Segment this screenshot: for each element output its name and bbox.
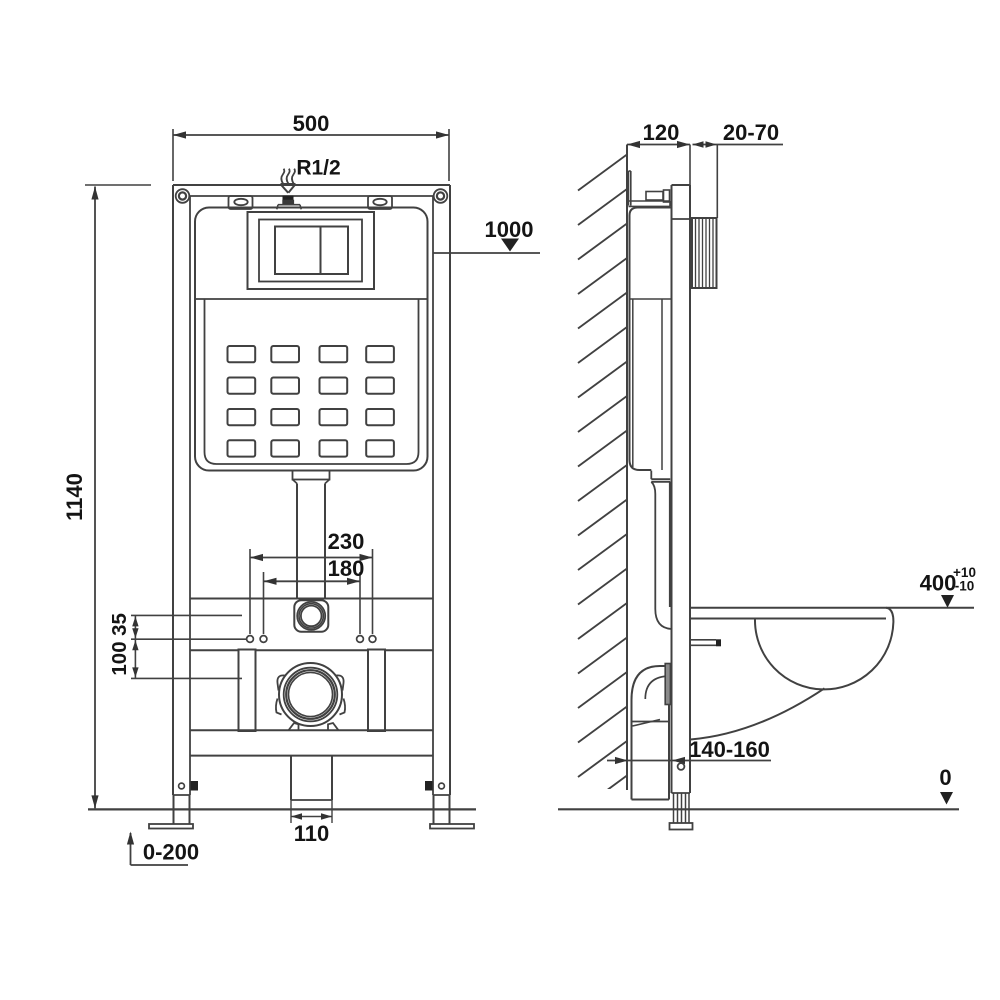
svg-text:1140: 1140 (62, 473, 87, 521)
svg-text:1000: 1000 (485, 217, 534, 242)
svg-text:110: 110 (294, 821, 330, 846)
svg-text:180: 180 (328, 556, 365, 581)
svg-text:120: 120 (643, 120, 680, 145)
svg-text:0-200: 0-200 (143, 840, 199, 865)
svg-text:20-70: 20-70 (723, 120, 779, 145)
svg-text:230: 230 (328, 529, 365, 554)
svg-text:35: 35 (108, 613, 131, 636)
svg-text:R1/2: R1/2 (296, 157, 340, 180)
svg-text:140-160: 140-160 (689, 737, 770, 762)
svg-text:0: 0 (939, 765, 951, 790)
svg-text:100: 100 (108, 641, 131, 675)
svg-text:400: 400 (920, 571, 957, 596)
svg-text:-10: -10 (955, 579, 975, 594)
svg-text:500: 500 (293, 111, 330, 136)
